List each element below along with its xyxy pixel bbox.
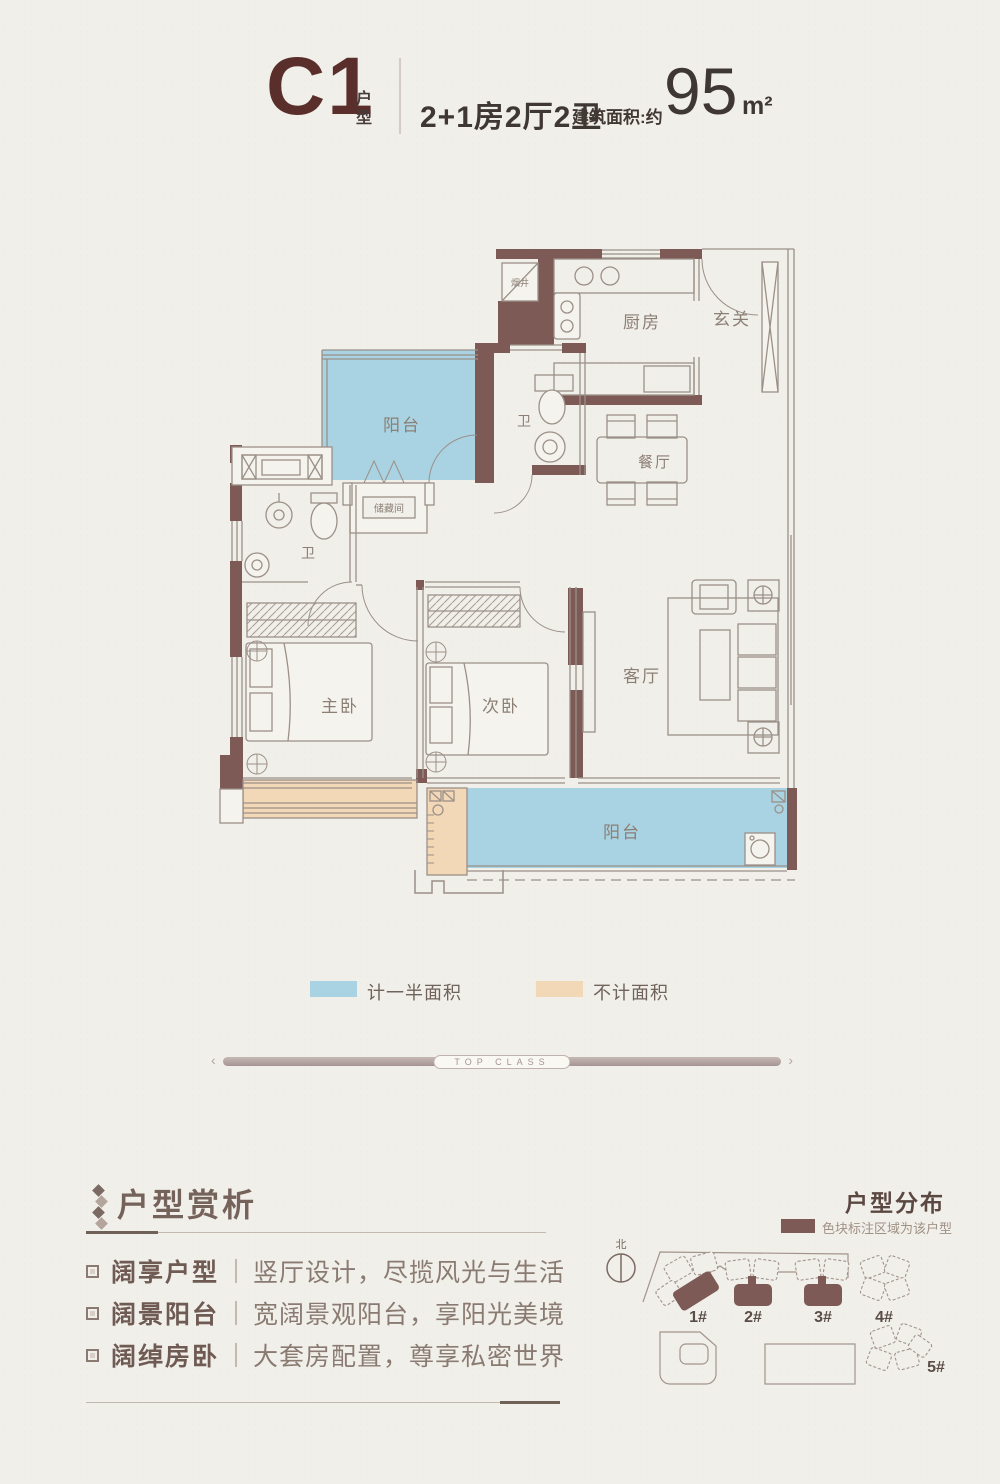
building-label-4: 4#	[875, 1309, 893, 1326]
analysis-underline	[86, 1231, 546, 1234]
unit-type-label: 户型	[356, 90, 374, 128]
analysis-item: 阔享户型 竖厅设计，尽揽风光与生活	[86, 1255, 565, 1287]
header-divider	[399, 58, 401, 134]
term-separator	[235, 1343, 237, 1367]
area-unit: m²	[742, 92, 773, 121]
square-bullet-icon	[86, 1265, 99, 1278]
analysis-bottom-rule	[86, 1401, 560, 1404]
analysis-desc: 大套房配置，尊享私密世界	[253, 1337, 565, 1373]
label-bath-left: 卫	[301, 545, 315, 561]
unit-type-char1: 户	[356, 91, 372, 108]
analysis-item: 阔绰房卧 大套房配置，尊享私密世界	[86, 1339, 565, 1371]
area-value: 95	[664, 58, 737, 124]
half-area-label: 计一半面积	[367, 979, 462, 1005]
label-storage: 储藏间	[374, 502, 404, 515]
distribution-title: 户型分布	[845, 1184, 945, 1218]
north-label: 北	[616, 1238, 627, 1251]
label-living: 客厅	[623, 667, 661, 686]
divider-right-chevron-icon: ›	[788, 1052, 793, 1068]
square-bullet-icon	[86, 1349, 99, 1362]
square-bullet-icon	[86, 1307, 99, 1320]
analysis-desc: 竖厅设计，尽揽风光与生活	[253, 1253, 565, 1289]
label-smoke-shaft: 烟井	[511, 277, 529, 288]
label-dining: 餐厅	[638, 454, 672, 471]
label-kitchen: 厨房	[623, 313, 661, 332]
label-master-bedroom: 主卧	[321, 697, 359, 716]
term-separator	[235, 1301, 237, 1325]
analysis-title: 户型赏析	[117, 1180, 257, 1226]
analysis-term: 阔绰房卧	[111, 1337, 219, 1373]
area-label: 建筑面积:约	[572, 103, 663, 128]
analysis-term: 阔景阳台	[111, 1295, 219, 1331]
podium-outlines	[660, 1332, 855, 1384]
distribution-legend-swatch	[781, 1219, 815, 1233]
label-balcony-top: 阳台	[383, 416, 421, 435]
label-second-bedroom: 次卧	[482, 697, 520, 716]
area-legend: 计一半面积 不计面积	[0, 978, 1000, 1002]
floorplan: 烟井 厨房 玄关 餐厅 阳台 卫 储藏间 卫 主卧 次卧 客厅 阳台	[180, 235, 820, 975]
excluded-area-swatch	[536, 981, 583, 997]
site-map: 北	[600, 1232, 990, 1412]
building-label-1: 1#	[689, 1309, 707, 1326]
unit-type-char2: 型	[356, 110, 372, 127]
north-arrow-icon: 北	[607, 1238, 635, 1282]
page: C1 户型 2+1房2厅2卫 建筑面积:约 95 m²	[0, 0, 1000, 1484]
analysis-term: 阔享户型	[111, 1253, 219, 1289]
label-foyer: 玄关	[713, 310, 751, 329]
half-area-swatch	[310, 981, 357, 997]
label-bath-main: 卫	[517, 413, 531, 429]
excluded-area-label: 不计面积	[593, 979, 669, 1005]
term-separator	[235, 1259, 237, 1283]
building-label-5: 5#	[927, 1359, 945, 1376]
label-balcony-bottom: 阳台	[603, 823, 641, 842]
divider-text: TOP CLASS	[433, 1055, 570, 1069]
building-label-3: 3#	[814, 1309, 832, 1326]
section-divider: ‹ TOP CLASS ›	[213, 1055, 791, 1067]
divider-left-chevron-icon: ‹	[211, 1052, 216, 1068]
analysis-item: 阔景阳台 宽阔景观阳台，享阳光美境	[86, 1297, 565, 1329]
building-label-2: 2#	[744, 1309, 762, 1326]
analysis-desc: 宽阔景观阳台，享阳光美境	[253, 1295, 565, 1331]
diamond-zigzag-icon	[89, 1184, 109, 1232]
